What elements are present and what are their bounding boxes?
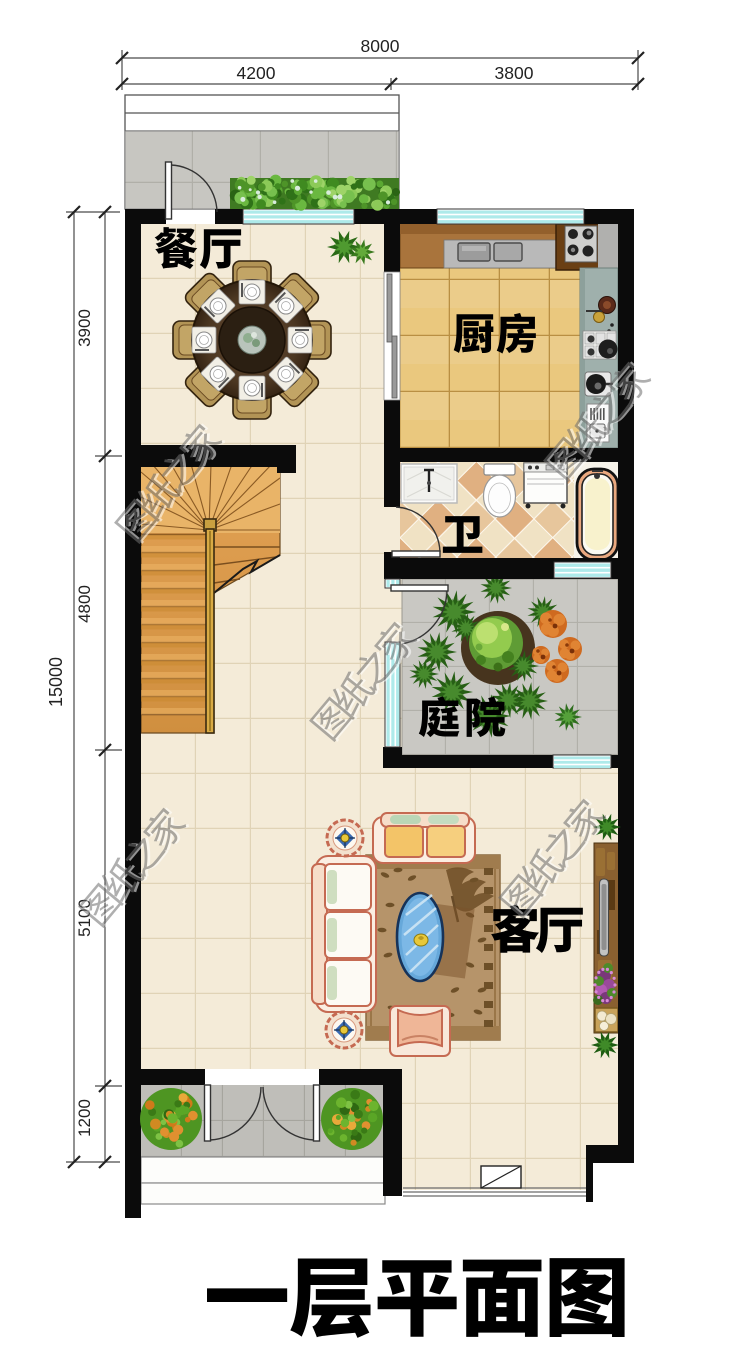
svg-text:3900: 3900 [75, 309, 94, 347]
svg-text:3800: 3800 [495, 63, 534, 83]
svg-text:1200: 1200 [75, 1099, 94, 1137]
svg-text:4200: 4200 [237, 63, 276, 83]
svg-text:4800: 4800 [75, 585, 94, 623]
svg-text:15000: 15000 [46, 657, 66, 707]
svg-text:8000: 8000 [361, 36, 400, 56]
